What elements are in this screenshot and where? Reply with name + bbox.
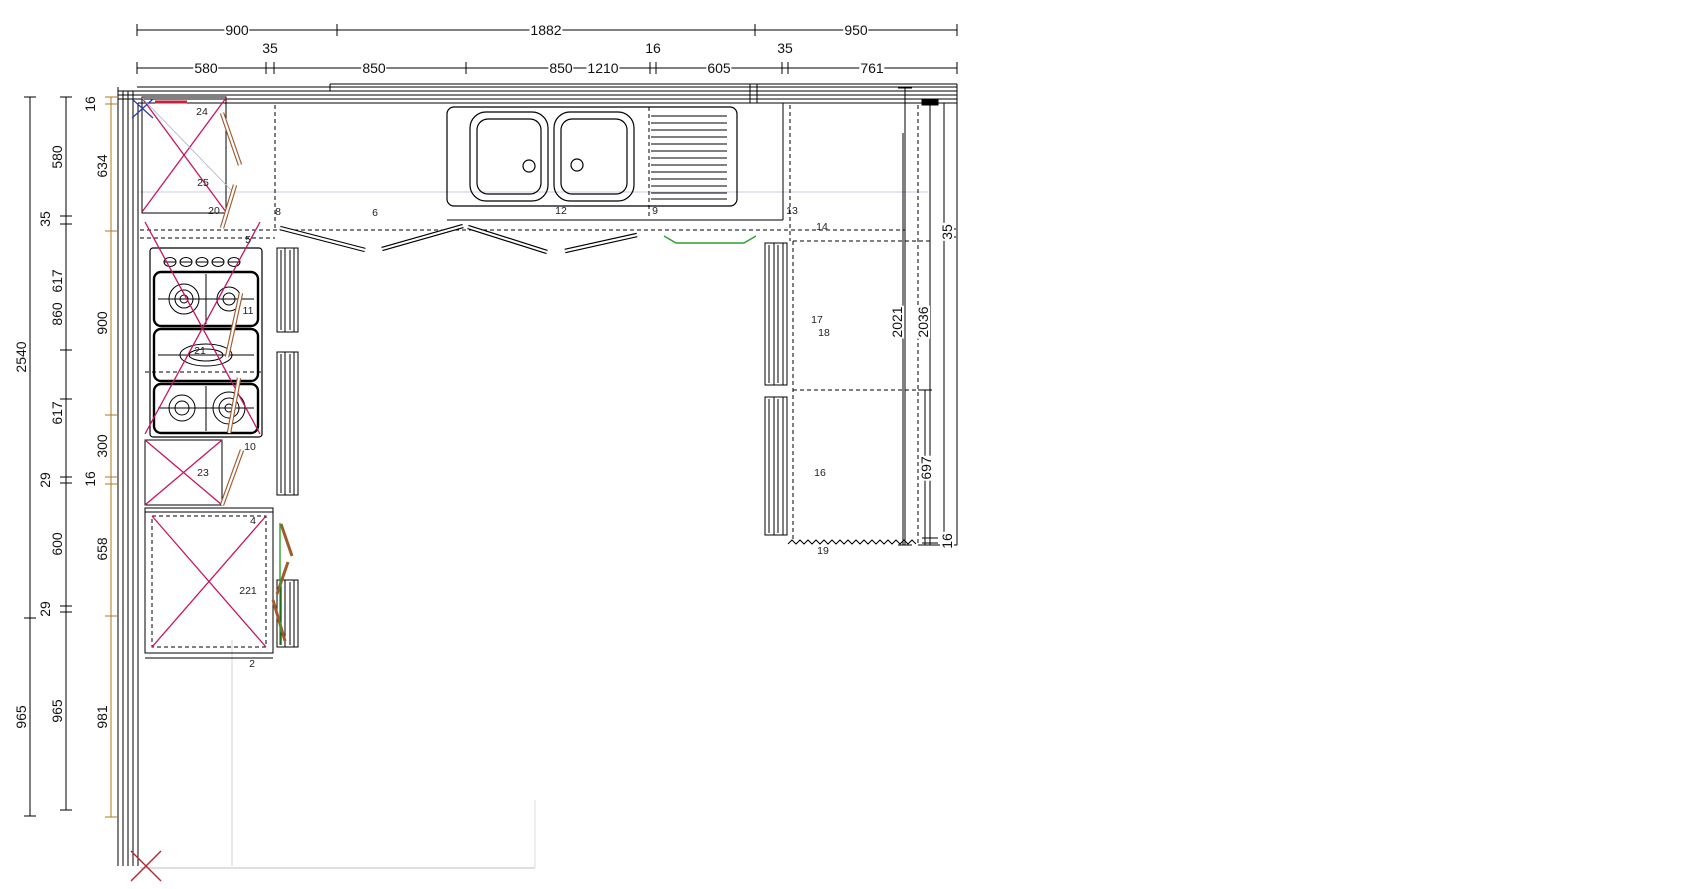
louver-right-1 (765, 243, 787, 385)
louver-left-1 (277, 248, 298, 332)
corner-marks (131, 98, 231, 881)
dim-lines-left-orange (105, 97, 117, 817)
wall-right (930, 84, 957, 545)
sink (447, 107, 737, 206)
hob-knobs (164, 258, 240, 267)
dim-lines-left (24, 97, 72, 816)
louver-left-2 (277, 352, 298, 495)
sink-drainer (651, 116, 727, 199)
wall-top (118, 84, 957, 105)
louver-blocks (277, 243, 787, 647)
break-line (788, 540, 916, 544)
louver-right-2 (765, 397, 787, 535)
wall-left (118, 87, 138, 866)
floorplan-drawing (0, 0, 1684, 889)
floorplan-canvas[interactable]: 9001882950580850850121060576135163525409… (0, 0, 1684, 889)
green-highlights (280, 236, 756, 645)
hob (150, 248, 262, 437)
dim-lines-top (137, 24, 957, 74)
dim-lines-right (898, 88, 956, 545)
